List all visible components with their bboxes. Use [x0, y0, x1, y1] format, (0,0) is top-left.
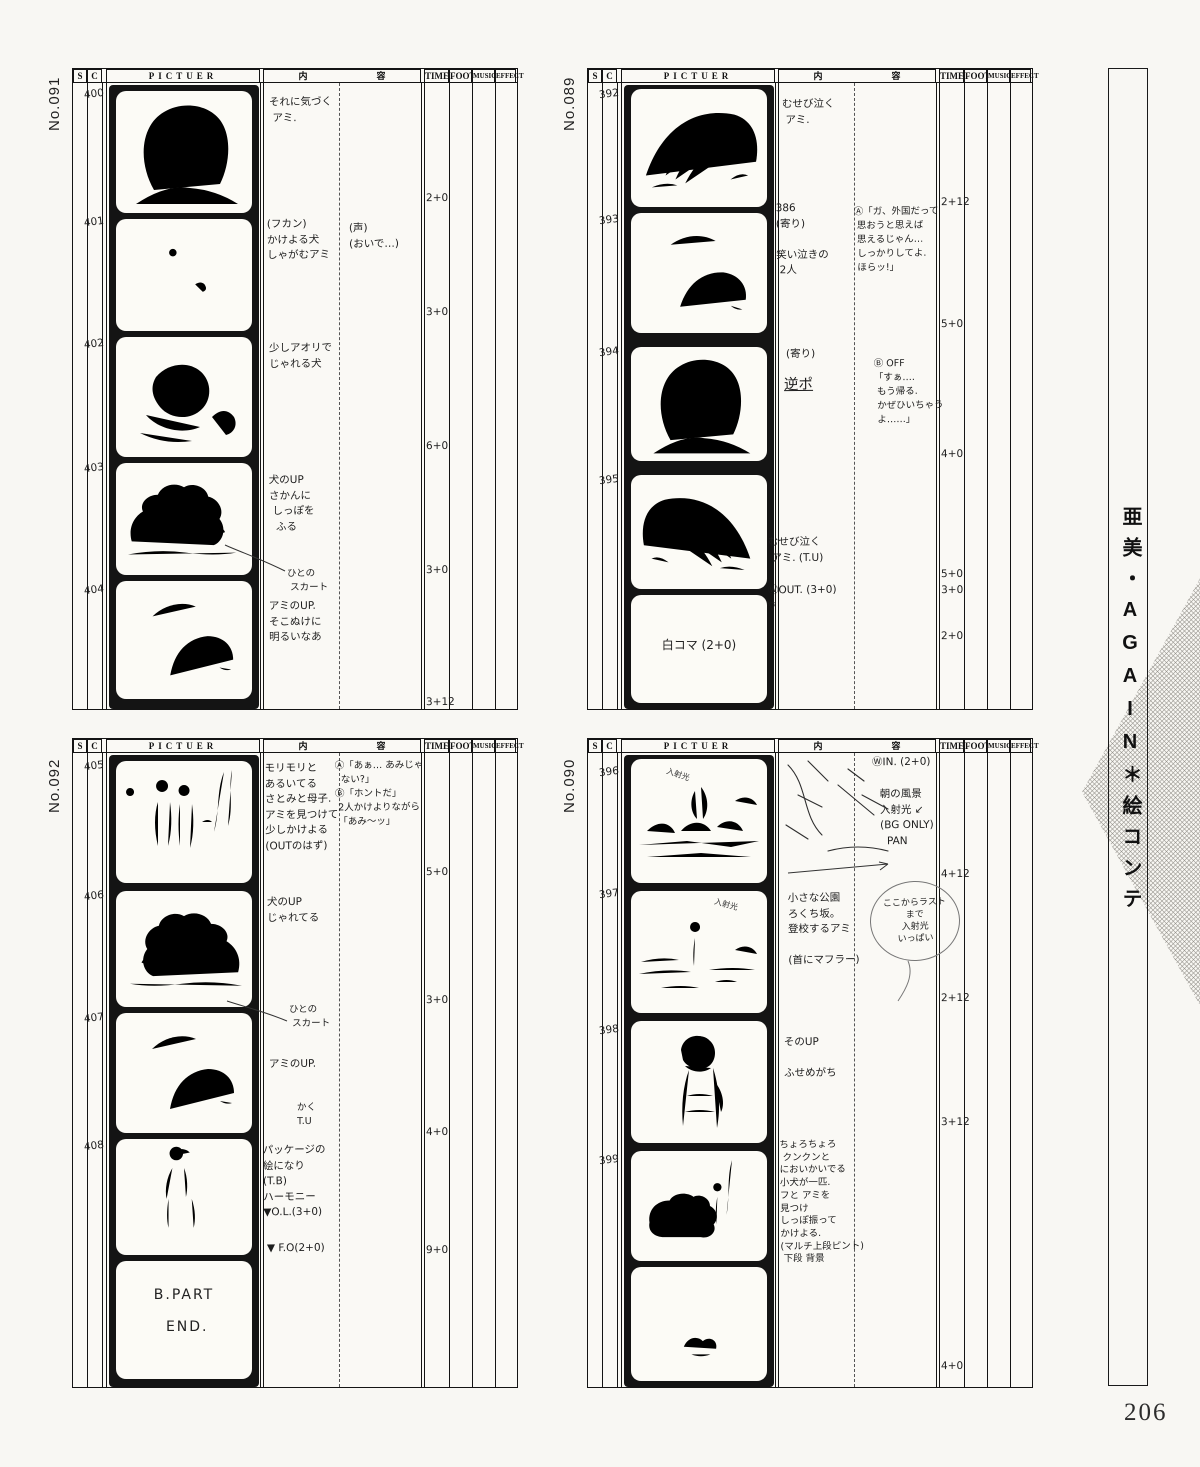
- col-header-content: 内容: [778, 69, 936, 83]
- content-header-left: 内: [298, 70, 307, 82]
- cut-time: 3+0: [426, 993, 448, 1009]
- cut-time: 4+0: [941, 447, 963, 463]
- sketch-face-closeup: [116, 581, 252, 699]
- cut-time: 4+0: [426, 1125, 448, 1141]
- cut-time: 3+0: [426, 563, 448, 579]
- cut-time: 2+12: [941, 195, 970, 211]
- content-header-left: 内: [813, 70, 822, 82]
- cut-number: 396: [598, 764, 620, 782]
- col-header-music: MUSIC: [987, 69, 1010, 83]
- cut-note-skirt: ひとの スカート: [287, 567, 328, 596]
- cut-dialogue: Ⓐ「あぁ… あみじゃ ない?」 Ⓑ「ホントだ」 2人かけよりながら 「あみ〜ッ」: [335, 759, 424, 830]
- storyboard-frame-393: [631, 213, 767, 333]
- cut-time: 4+12: [941, 867, 970, 883]
- cut-action: 少しアオリで じゃれる犬: [269, 341, 332, 373]
- cut-action: アミのUP. そこぬけに 明るいなあ: [269, 599, 322, 646]
- storyboard-frame-405: [116, 761, 252, 883]
- sketch-dog-and-girl: [631, 1151, 767, 1261]
- cut-number: 393: [598, 212, 620, 230]
- col-header-foot: FOOT: [449, 739, 472, 753]
- col-header-time: TIME: [939, 739, 964, 753]
- board-number-label: No.092: [46, 759, 63, 813]
- cut-number: 398: [598, 1022, 620, 1040]
- storyboard-frame-white: 白コマ (2+0): [631, 595, 767, 703]
- col-header-music: MUSIC: [472, 739, 495, 753]
- storyboard-frame-bpart-end: B.PART END.: [116, 1261, 252, 1379]
- cut-number: 395: [598, 472, 620, 490]
- sketch-girl-standing: [631, 1021, 767, 1143]
- sketch-girl-and-dog: [116, 337, 252, 457]
- cut-number: 394: [598, 344, 620, 362]
- cut-action: アミのUP.: [269, 1057, 316, 1073]
- storyboard-frame-395: [631, 475, 767, 589]
- sketch-girl-portrait: [116, 91, 252, 213]
- col-header-effect: EFFECT: [1010, 739, 1031, 753]
- board-number-label: No.090: [561, 759, 578, 813]
- content-header-right: 容: [891, 70, 900, 82]
- annotation-arrow: [223, 997, 293, 1027]
- cut-action: むせび泣く アミ. (T.U): [768, 535, 824, 567]
- cut-number: 392: [598, 86, 620, 104]
- col-header-effect: EFFECT: [1010, 69, 1031, 83]
- cut-time: 4+0: [941, 1359, 963, 1375]
- storyboard-frame-396: [631, 759, 767, 883]
- cut-action: 386 (寄り) 笑い泣きの 2人: [776, 201, 829, 279]
- storyboard-frame-400: [116, 91, 252, 213]
- white-frame-text: 白コマ (2+0): [631, 636, 767, 653]
- storyboard-frame-408: [116, 1139, 252, 1255]
- sketch-slope-figure: [116, 219, 252, 331]
- storyboard-table-no089: No.089 S C PICTUER 内容 TIME FOOT MUSIC EF…: [587, 68, 1033, 710]
- content-header-right: 容: [376, 740, 385, 752]
- col-header-music: MUSIC: [987, 739, 1010, 753]
- cut-action: (寄り): [786, 347, 815, 363]
- content-header-right: 容: [376, 70, 385, 82]
- storyboard-table-no092: No.092 S C PICTUER 内容 TIME FOOT MUSIC EF…: [72, 738, 518, 1388]
- col-header-time: TIME: [424, 69, 449, 83]
- storyboard-frame-406: [116, 891, 252, 1007]
- col-header-foot: FOOT: [964, 739, 987, 753]
- cut-number: 402: [83, 336, 105, 354]
- col-header-time: TIME: [939, 69, 964, 83]
- cut-time: 6+0: [426, 439, 448, 455]
- film-strip: 白コマ (2+0): [624, 85, 774, 709]
- cut-time: 3+12: [941, 1115, 970, 1131]
- col-header-s: S: [73, 739, 87, 753]
- col-header-c: C: [602, 739, 617, 753]
- storyboard-frame-404: [116, 581, 252, 699]
- cut-action: モリモリと あるいてる さとみと母子. アミを見つけて 少しかけよる (OUTの…: [265, 761, 339, 855]
- cut-action: パッケージの 絵になり (T.B) ハーモニー ▼O.L.(3+0): [263, 1143, 327, 1221]
- bubble-tail: [888, 959, 918, 1003]
- sketch-dog-closeup: [116, 891, 252, 1007]
- col-header-s: S: [588, 69, 602, 83]
- cut-number: 401: [83, 214, 105, 232]
- content-header-right: 容: [891, 740, 900, 752]
- storyboard-frame-399: [631, 1151, 767, 1261]
- cut-action: 小さな公園 ろくち坂。 登校するアミ (首にマフラー): [788, 891, 860, 969]
- page-number: 206: [1124, 1399, 1168, 1427]
- sketch-two-figures: [116, 761, 252, 883]
- cut-time: 2+12: [941, 991, 970, 1007]
- col-header-s: S: [73, 69, 87, 83]
- cut-time: 3+12: [426, 695, 455, 711]
- board-number-label: No.091: [46, 77, 63, 131]
- cut-action: それに気づく アミ.: [269, 95, 332, 127]
- storyboard-frame-398: [631, 1021, 767, 1143]
- sketch-crying-face: [631, 213, 767, 333]
- sketch-girl-face: [631, 347, 767, 461]
- storyboard-frame-407: [116, 1013, 252, 1133]
- cut-action-emphasis: 逆ポ: [784, 375, 813, 397]
- cut-transition: ▼ F.O(2+0): [267, 1241, 325, 1257]
- cut-transition: ⓌIN. (2+0): [872, 755, 931, 771]
- sketch-walking-girl: [631, 891, 767, 1013]
- cut-number: 407: [83, 1010, 105, 1028]
- cut-time: 2+0: [941, 629, 963, 645]
- col-header-effect: EFFECT: [495, 69, 516, 83]
- storyboard-frame-402: [116, 337, 252, 457]
- cut-note-tu: かく T.U: [297, 1101, 316, 1129]
- cut-number: 406: [83, 888, 105, 906]
- cut-time: 3+0: [426, 305, 448, 321]
- content-header-left: 内: [298, 740, 307, 752]
- cut-action: 犬のUP さかんに しっぽを ふる: [269, 473, 315, 536]
- cut-time: 5+0 3+0: [941, 567, 963, 598]
- board-number-label: No.089: [561, 77, 578, 131]
- cut-action: むせび泣く アミ.: [782, 97, 835, 129]
- storyboard-frame-397: [631, 891, 767, 1013]
- col-header-content: 内容: [263, 69, 421, 83]
- col-header-foot: FOOT: [964, 69, 987, 83]
- col-header-picture: PICTUER: [106, 69, 260, 83]
- episode-title-vertical: 亜美・AGAIN＊絵コンテ: [1116, 506, 1145, 919]
- cut-action: 朝の風景 入射光 ↙ (BG ONLY) PAN: [880, 787, 934, 850]
- col-header-content: 内容: [263, 739, 421, 753]
- cut-action: 犬のUP じゃれてる: [267, 895, 320, 927]
- storyboard-frame-blank: [631, 1267, 767, 1381]
- col-header-c: C: [602, 69, 617, 83]
- note-bubble-light-rays: ここからラスト まで 入射光 いっぱい: [869, 879, 962, 962]
- sketch-morning-landscape: [631, 759, 767, 883]
- storyboard-frame-401: [116, 219, 252, 331]
- col-header-music: MUSIC: [472, 69, 495, 83]
- cut-number: 408: [83, 1138, 105, 1156]
- col-header-foot: FOOT: [449, 69, 472, 83]
- sketch-sobbing-girl: [631, 89, 767, 207]
- cut-note-skirt: ひとの スカート: [289, 1003, 330, 1032]
- cut-number: 405: [83, 758, 105, 776]
- cut-action: そのUP ふせめがち: [784, 1035, 837, 1082]
- cut-time: 2+0: [426, 191, 448, 207]
- cut-dialogue: Ⓑ OFF 「すぁ…. もう帰る. かぜひいちゃう よ……」: [874, 357, 944, 428]
- sketch-seated-figure: [116, 1139, 252, 1255]
- cut-time: 5+0: [941, 317, 963, 333]
- cut-time: 9+0: [426, 1243, 448, 1259]
- cut-time: 5+0: [426, 865, 448, 881]
- sketch-small-squiggle: [631, 1267, 767, 1381]
- storyboard-page: No.091 S C PICTUER 内容 TIME FOOT MUSIC EF…: [0, 0, 1200, 1467]
- film-strip: [109, 85, 259, 709]
- col-header-time: TIME: [424, 739, 449, 753]
- cut-number: 400: [83, 86, 105, 104]
- film-strip: B.PART END.: [109, 755, 259, 1387]
- bpart-end-text: B.PART END.: [116, 1287, 252, 1335]
- pan-arrow: [784, 859, 904, 877]
- col-header-picture: PICTUER: [621, 739, 775, 753]
- storyboard-table-no090: No.090 S C PICTUER 内容 TIME FOOT MUSIC EF…: [587, 738, 1033, 1388]
- cut-dialogue: Ⓐ「ガ、外国だって 思おうと思えば 思えるじゃん… しっかりしてよ. ほらッ!」: [854, 205, 940, 276]
- cut-number: 404: [83, 582, 105, 600]
- cut-action: ちょろちょろ クンクンと においかいでる 小犬が一匹. フと アミを 見つけ し…: [779, 1139, 864, 1267]
- cut-dialogue: (声) (おいで…): [349, 221, 399, 253]
- storyboard-frame-392: [631, 89, 767, 207]
- col-header-picture: PICTUER: [106, 739, 260, 753]
- col-header-c: C: [87, 739, 102, 753]
- col-header-c: C: [87, 69, 102, 83]
- storyboard-table-no091: No.091 S C PICTUER 内容 TIME FOOT MUSIC EF…: [72, 68, 518, 710]
- cut-number: 397: [598, 886, 620, 904]
- col-header-picture: PICTUER: [621, 69, 775, 83]
- film-strip: [624, 755, 774, 1387]
- sketch-face-closeup: [116, 1013, 252, 1133]
- cut-number: 399: [598, 1152, 620, 1170]
- col-header-s: S: [588, 739, 602, 753]
- cut-action: (フカン) かけよる犬 しゃがむアミ: [267, 217, 330, 264]
- annotation-arrow: [221, 541, 291, 577]
- cut-transition: ⓌOUT. (3+0) ▽: [768, 583, 837, 615]
- content-header-left: 内: [813, 740, 822, 752]
- cut-number: 403: [83, 460, 105, 478]
- col-header-content: 内容: [778, 739, 936, 753]
- sketch-bowed-head: [631, 475, 767, 589]
- storyboard-frame-394: [631, 347, 767, 461]
- col-header-effect: EFFECT: [495, 739, 516, 753]
